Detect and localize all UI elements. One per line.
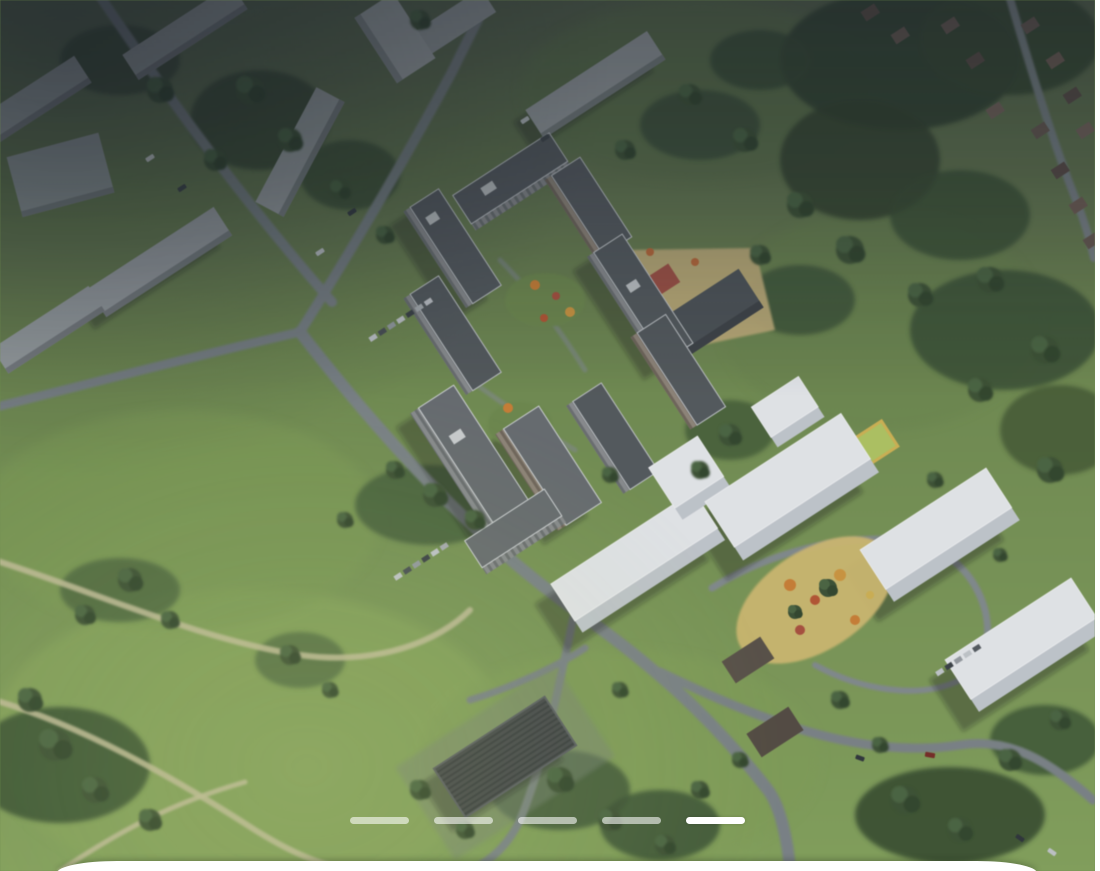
pagination-dash-3[interactable] <box>518 817 577 824</box>
bottom-sheet[interactable] <box>57 861 1037 871</box>
photo-carousel-slide[interactable] <box>0 0 1095 871</box>
pagination-dash-4[interactable] <box>602 817 661 824</box>
carousel-pagination <box>0 817 1095 824</box>
tint-veil <box>0 0 1095 871</box>
pagination-dash-5[interactable] <box>686 817 745 824</box>
pagination-dash-1[interactable] <box>350 817 409 824</box>
aerial-render-scene <box>0 0 1095 871</box>
listing-screen <box>0 0 1100 871</box>
pagination-dash-2[interactable] <box>434 817 493 824</box>
